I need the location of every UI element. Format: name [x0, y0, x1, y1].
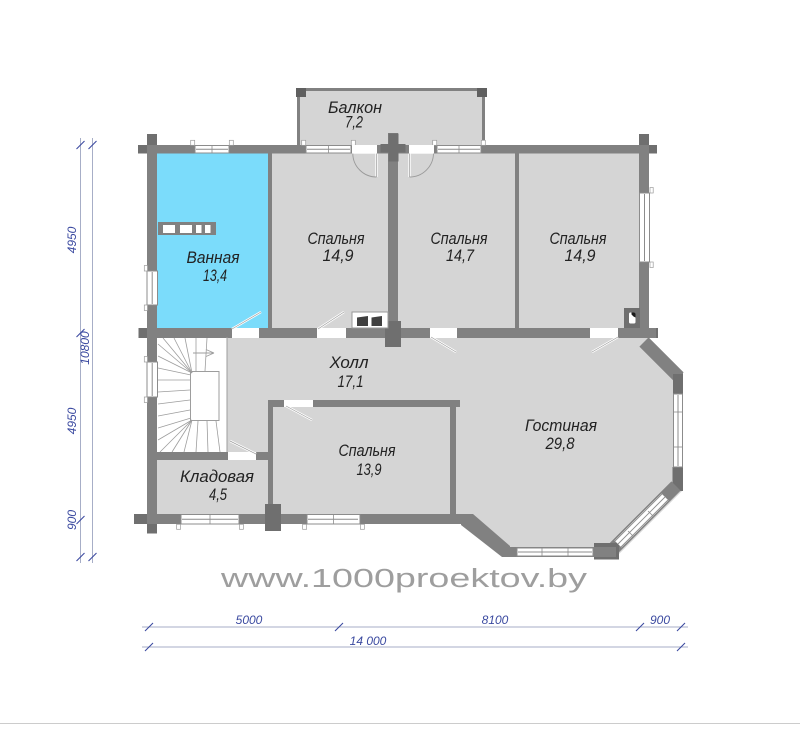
- svg-text:Кладовая: Кладовая: [180, 468, 254, 486]
- svg-text:Гостиная: Гостиная: [525, 417, 597, 435]
- svg-text:Холл: Холл: [328, 354, 368, 372]
- svg-text:7,2: 7,2: [345, 114, 363, 132]
- svg-text:Ванная: Ванная: [187, 249, 240, 267]
- svg-text:14,9: 14,9: [565, 247, 596, 265]
- svg-text:Спальня: Спальня: [339, 442, 396, 460]
- svg-text:5000: 5000: [236, 613, 263, 627]
- svg-text:Спальня: Спальня: [550, 230, 607, 248]
- svg-text:900: 900: [65, 510, 79, 530]
- svg-text:8100: 8100: [482, 613, 509, 627]
- svg-text:13,9: 13,9: [357, 461, 382, 479]
- svg-text:900: 900: [650, 613, 670, 627]
- svg-text:10800: 10800: [78, 331, 92, 365]
- svg-text:14,9: 14,9: [323, 247, 354, 265]
- svg-text:Спальня: Спальня: [308, 230, 365, 248]
- svg-text:14,7: 14,7: [446, 247, 475, 265]
- svg-text:4950: 4950: [65, 226, 79, 253]
- svg-text:13,4: 13,4: [203, 267, 227, 285]
- svg-text:17,1: 17,1: [338, 373, 364, 391]
- svg-text:4950: 4950: [65, 407, 79, 434]
- svg-text:Спальня: Спальня: [431, 230, 488, 248]
- svg-text:29,8: 29,8: [545, 435, 576, 453]
- svg-text:4,5: 4,5: [209, 486, 228, 504]
- svg-text:www.1000proektov.by: www.1000proektov.by: [220, 565, 588, 593]
- svg-text:14 000: 14 000: [350, 634, 387, 648]
